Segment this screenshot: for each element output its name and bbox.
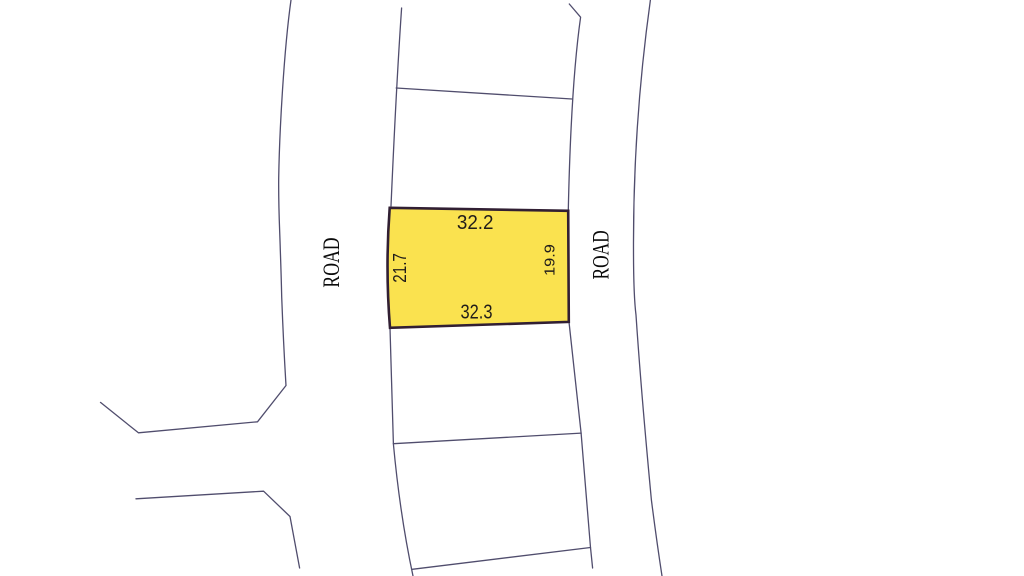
svg-text:32.2: 32.2 bbox=[457, 212, 494, 234]
svg-text:21.7: 21.7 bbox=[389, 253, 410, 283]
svg-text:ROAD: ROAD bbox=[319, 237, 344, 287]
svg-text:32.3: 32.3 bbox=[461, 302, 493, 324]
svg-text:19.9: 19.9 bbox=[542, 244, 559, 276]
svg-text:ROAD: ROAD bbox=[588, 230, 613, 279]
